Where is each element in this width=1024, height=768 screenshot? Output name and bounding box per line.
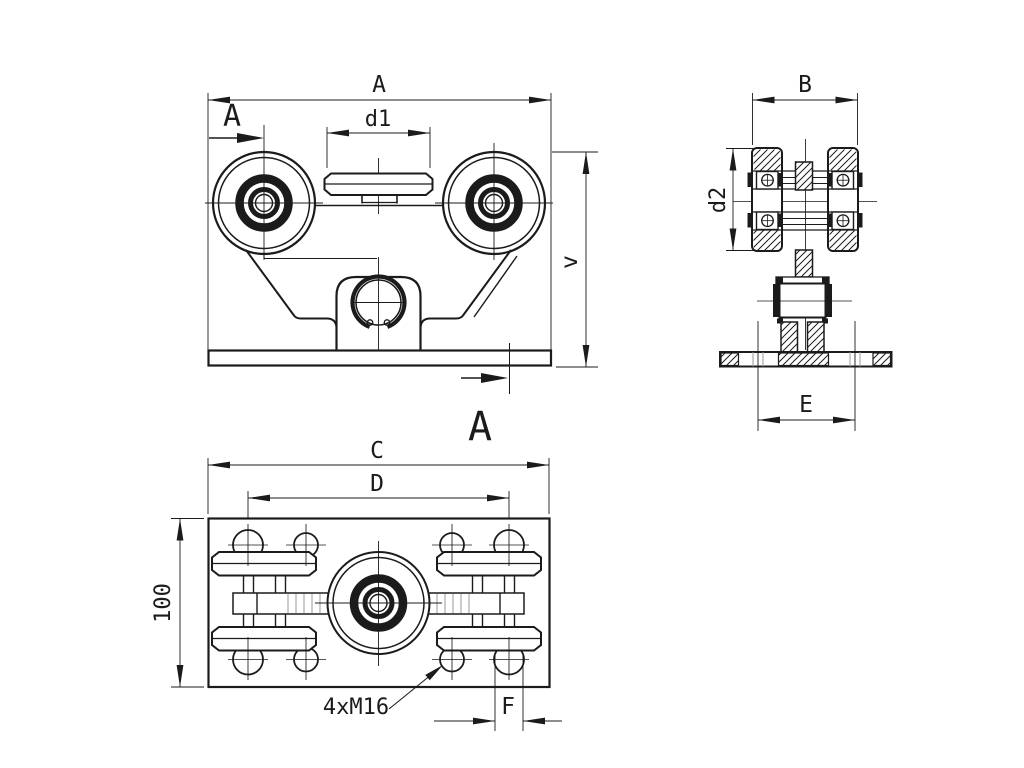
front-mount-bracket	[337, 257, 421, 351]
side-pivot-assembly	[757, 250, 852, 353]
pivot-shaft	[796, 250, 813, 277]
arrowhead	[833, 417, 855, 424]
dim-label-f: F	[501, 694, 515, 720]
section-label-top: A	[223, 99, 241, 134]
arrowhead	[753, 97, 775, 104]
arrowhead	[836, 97, 858, 104]
side-roller-right	[828, 148, 858, 251]
plan-view: C D 100	[151, 438, 562, 731]
side-dim-overall-width: B	[753, 72, 858, 145]
arrowhead	[527, 462, 549, 469]
dim-label-v: v	[557, 255, 583, 269]
technical-drawing: A A d1 v	[0, 0, 1024, 768]
pivot-bushing	[780, 284, 826, 318]
arrowhead	[583, 345, 590, 367]
arrowhead	[208, 462, 230, 469]
body-right-edge-inner	[474, 256, 517, 317]
arrowhead	[523, 718, 545, 725]
dim-label-100: 100	[151, 583, 176, 623]
front-base-plate	[209, 351, 552, 366]
arrowhead	[408, 130, 430, 137]
arrowhead	[473, 718, 495, 725]
front-dim-height: v	[552, 152, 598, 367]
arrowhead	[177, 519, 184, 541]
section-arrowhead	[237, 133, 264, 143]
dim-label-d1: d1	[365, 107, 392, 132]
side-roller-left	[752, 148, 782, 251]
arrowhead	[730, 229, 737, 251]
dim-label-e: E	[799, 392, 813, 418]
fork-leg	[781, 322, 798, 353]
thread-callout-label: 4xM16	[323, 695, 389, 720]
front-left-roller	[205, 125, 323, 260]
dim-label-d: D	[370, 471, 384, 497]
arrowhead	[248, 495, 270, 502]
dim-label-b: B	[798, 72, 812, 98]
body-right-edge	[421, 250, 512, 327]
bearing-top-right	[832, 172, 854, 190]
side-body-plate-top	[796, 162, 813, 190]
front-right-roller	[435, 143, 553, 260]
side-dim-roller-diameter: d2	[706, 149, 755, 251]
front-section-arrow-top: A	[209, 99, 264, 143]
side-view: B d2	[706, 72, 892, 431]
fork-leg	[808, 322, 825, 353]
arrowhead	[177, 665, 184, 687]
dim-label-d2: d2	[706, 187, 731, 214]
dim-label-a: A	[372, 72, 386, 98]
arrowhead	[730, 149, 737, 171]
front-view: A A d1 v	[205, 72, 598, 450]
bearing-bottom-right	[832, 212, 854, 230]
body-left-edge	[246, 250, 337, 327]
side-dim-stud-spacing: E	[758, 321, 855, 431]
arrowhead	[758, 417, 780, 424]
dim-label-c: C	[370, 438, 384, 464]
bearing-bottom-left	[757, 212, 779, 230]
section-arrowhead	[481, 373, 508, 383]
arrowhead	[583, 152, 590, 174]
arrowhead	[487, 495, 509, 502]
arrowhead	[327, 130, 349, 137]
plan-dim-plate-width: 100	[151, 519, 204, 688]
bushing-seal	[825, 284, 832, 317]
drawing-svg: A A d1 v	[0, 0, 1024, 768]
bushing-seal	[773, 284, 780, 317]
bearing-top-left	[757, 172, 779, 190]
section-label-bottom: A	[468, 404, 492, 450]
arrowhead	[529, 97, 551, 104]
side-base-plate	[720, 352, 892, 367]
